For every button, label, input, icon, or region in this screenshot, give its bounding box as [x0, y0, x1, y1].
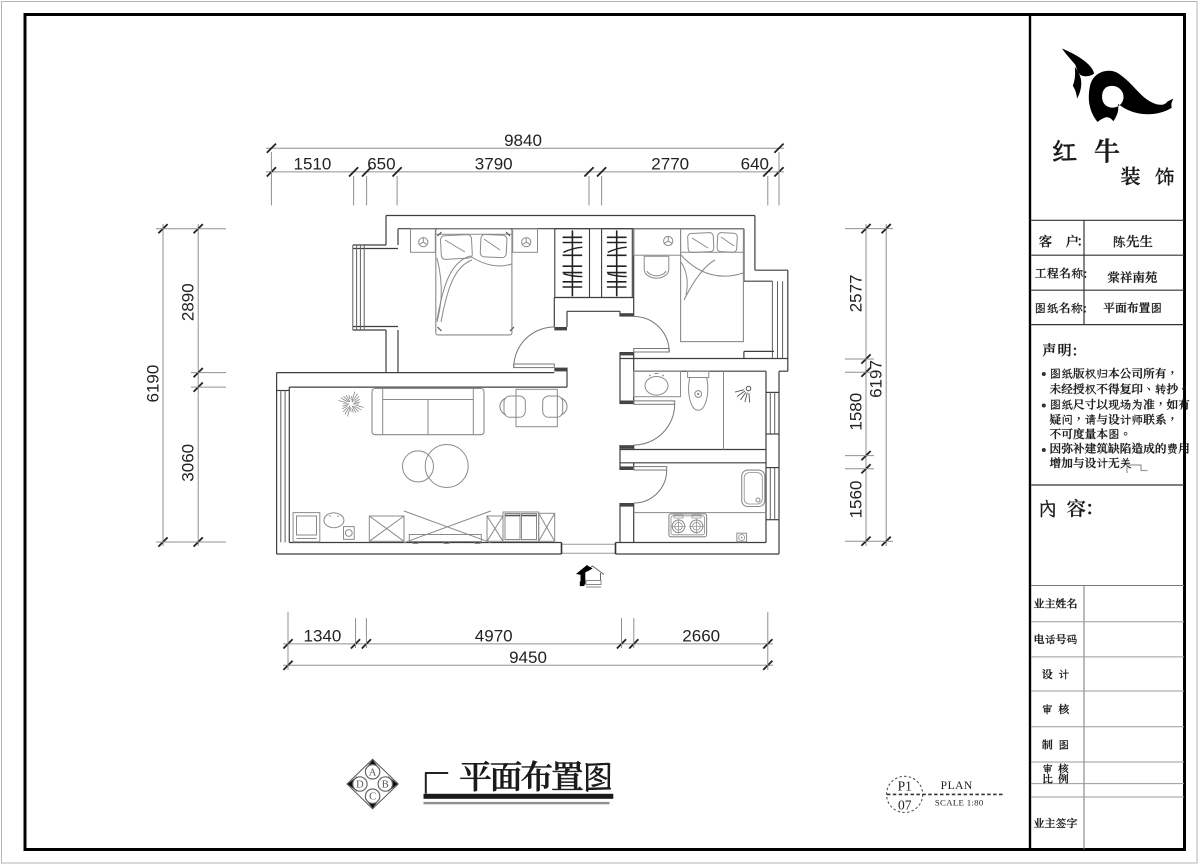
- svg-text:PLAN: PLAN: [941, 780, 973, 792]
- svg-text:A: A: [369, 767, 377, 778]
- svg-text:P1: P1: [898, 778, 912, 793]
- svg-text:1340: 1340: [303, 626, 341, 645]
- svg-text:1580: 1580: [847, 393, 866, 431]
- svg-text:2660: 2660: [682, 626, 720, 645]
- svg-text:D: D: [356, 780, 364, 791]
- svg-text:9840: 9840: [504, 131, 542, 150]
- svg-text:SCALE 1:80: SCALE 1:80: [935, 798, 984, 808]
- svg-text:1510: 1510: [293, 154, 331, 173]
- svg-text:3060: 3060: [179, 444, 198, 482]
- svg-text:650: 650: [367, 154, 395, 173]
- svg-text:9450: 9450: [509, 648, 547, 667]
- svg-text:C: C: [369, 792, 376, 803]
- svg-text:3790: 3790: [475, 154, 513, 173]
- svg-text:B: B: [382, 780, 389, 791]
- svg-text:07: 07: [898, 798, 912, 813]
- svg-text:6190: 6190: [144, 365, 163, 403]
- svg-text:4970: 4970: [475, 626, 513, 645]
- svg-text:2577: 2577: [847, 274, 866, 312]
- svg-text:1560: 1560: [847, 481, 866, 519]
- svg-text:2890: 2890: [179, 283, 198, 321]
- svg-text:640: 640: [741, 154, 769, 173]
- svg-text:2770: 2770: [651, 154, 689, 173]
- svg-text:6197: 6197: [867, 360, 886, 398]
